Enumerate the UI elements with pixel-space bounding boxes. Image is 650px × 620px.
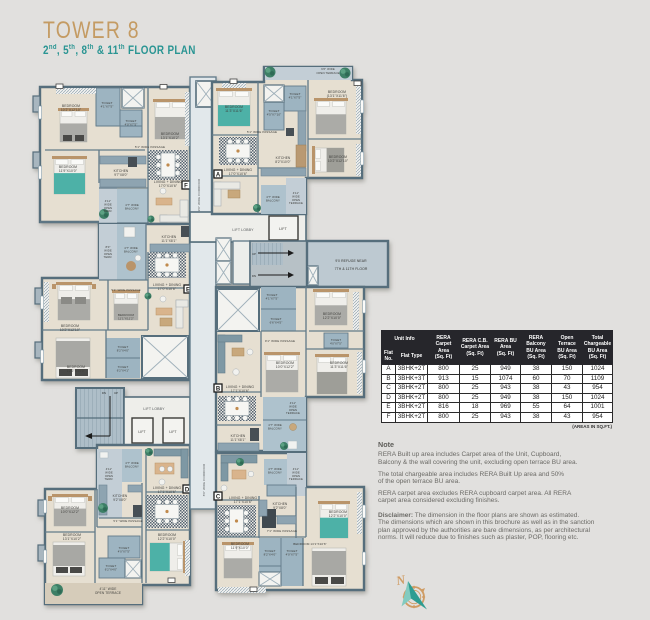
- svg-text:LIFT LOBBY: LIFT LOBBY: [143, 407, 165, 411]
- svg-text:N: N: [394, 572, 408, 588]
- svg-text:4'7" WIDEBALCONY: 4'7" WIDEBALCONY: [266, 195, 280, 202]
- svg-text:BEDROOM12'2"X10'0": BEDROOM12'2"X10'0": [67, 365, 86, 373]
- svg-text:TOILET4'0"X7'5": TOILET4'0"X7'5": [125, 119, 138, 127]
- svg-text:BEDROOM11'3"X11'6": BEDROOM11'3"X11'6": [330, 361, 349, 369]
- svg-text:BEDROOM11'1"X11'2": BEDROOM11'1"X11'2": [118, 313, 135, 321]
- svg-text:BEDROOM10'0"X12'2": BEDROOM10'0"X12'2": [276, 361, 295, 369]
- svg-text:BEDROOM10'2"X12'10": BEDROOM10'2"X12'10": [61, 104, 82, 112]
- svg-text:4'11"WIDEOPENTERR.: 4'11"WIDEOPENTERR.: [104, 199, 113, 213]
- svg-text:7TH & 11TH FLOOR: 7TH & 11TH FLOOR: [335, 267, 368, 271]
- svg-text:9'0" WIDE CORRIDOR: 9'0" WIDE CORRIDOR: [197, 178, 201, 211]
- svg-text:TOILET8'2"X4'0": TOILET8'2"X4'0": [264, 549, 277, 557]
- svg-text:TOILET4'5"X7'10": TOILET4'5"X7'10": [267, 109, 282, 117]
- svg-text:C: C: [216, 494, 221, 500]
- svg-text:LIFT LOBBY: LIFT LOBBY: [232, 228, 254, 232]
- svg-text:9'0 REFUGE NEAR: 9'0 REFUGE NEAR: [335, 259, 367, 263]
- svg-text:5'1" WIDE PASSAGE: 5'1" WIDE PASSAGE: [247, 130, 277, 134]
- svg-text:BEDROOM 13'1"X10'6": BEDROOM 13'1"X10'6": [293, 542, 327, 546]
- svg-text:BEDROOM12'2"X10'0": BEDROOM12'2"X10'0": [158, 533, 177, 541]
- svg-text:KITCHEN11'1"X8'1": KITCHEN11'1"X8'1": [230, 434, 246, 442]
- svg-text:8'0" WIDE CORRIDOR: 8'0" WIDE CORRIDOR: [202, 463, 206, 496]
- svg-text:TOILET4'0"X7'5": TOILET4'0"X7'5": [286, 549, 299, 557]
- svg-text:TOILET4'0"X7'5": TOILET4'0"X7'5": [330, 338, 342, 345]
- svg-text:TOILET6'2"X4'1": TOILET6'2"X4'1": [117, 365, 129, 373]
- svg-text:4'7" WIDEBALCONY: 4'7" WIDEBALCONY: [124, 246, 138, 253]
- svg-text:LIFT: LIFT: [279, 227, 287, 231]
- svg-text:4'7" WIDEBALCONY: 4'7" WIDEBALCONY: [125, 461, 139, 468]
- svg-text:4'7" WIDEBALCONY: 4'7" WIDEBALCONY: [268, 423, 282, 430]
- svg-text:KITCHEN9'2"X8'0": KITCHEN9'2"X8'0": [113, 494, 128, 502]
- svg-text:BEDROOM10'2"X12'10": BEDROOM10'2"X12'10": [328, 155, 349, 163]
- svg-text:UP: UP: [114, 391, 118, 395]
- svg-text:DN: DN: [102, 391, 106, 395]
- svg-text:4'7" WIDEBALCONY: 4'7" WIDEBALCONY: [268, 467, 282, 474]
- svg-text:5'3" WIDE PASSAGE: 5'3" WIDE PASSAGE: [111, 288, 140, 292]
- svg-text:BEDROOM13'1"X10'2": BEDROOM13'1"X10'2": [63, 533, 82, 541]
- svg-text:OPEN TERRACE: OPEN TERRACE: [316, 71, 339, 75]
- svg-text:TOILET6'2"X4'0": TOILET6'2"X4'0": [105, 564, 117, 572]
- svg-text:BEDROOM10'2"X12'10": BEDROOM10'2"X12'10": [60, 324, 81, 332]
- svg-text:5'1" WIDE PASSAGE: 5'1" WIDE PASSAGE: [113, 519, 142, 523]
- svg-text:4'11"WIDEOPENTERR.: 4'11"WIDEOPENTERR.: [105, 467, 114, 481]
- svg-text:TOILET4'0"X7'5": TOILET4'0"X7'5": [118, 546, 130, 554]
- svg-text:F: F: [184, 183, 188, 189]
- svg-text:TOILET8'2"X4'0": TOILET8'2"X4'0": [117, 345, 129, 353]
- svg-text:BEDROOM11'3"X11'6": BEDROOM11'3"X11'6": [225, 105, 244, 113]
- svg-text:BEDROOM13'1"X10'2": BEDROOM13'1"X10'2": [161, 132, 180, 140]
- svg-text:7'1" WIDE PASSAGE: 7'1" WIDE PASSAGE: [267, 529, 297, 533]
- svg-text:TOILET4'1"X7'5": TOILET4'1"X7'5": [266, 293, 279, 301]
- svg-text:D: D: [185, 487, 190, 493]
- svg-text:DN: DN: [252, 274, 256, 278]
- svg-text:BEDROOM11'9"X10'0": BEDROOM11'9"X10'0": [59, 165, 78, 173]
- svg-text:5'1" WIDE PASSAGE: 5'1" WIDE PASSAGE: [135, 145, 165, 149]
- svg-text:4'7" WIDEBALCONY: 4'7" WIDEBALCONY: [125, 203, 139, 210]
- svg-text:LIFT: LIFT: [138, 430, 145, 434]
- svg-text:TOILET6'6"X4'5": TOILET6'6"X4'5": [270, 317, 283, 325]
- svg-text:KITCHEN9'2"X8'0": KITCHEN9'2"X8'0": [273, 502, 288, 510]
- svg-text:KITCHEN8'2"X10'0": KITCHEN8'2"X10'0": [275, 156, 291, 164]
- svg-text:KITCHEN9'7"X8'0": KITCHEN9'7"X8'0": [114, 169, 129, 177]
- svg-text:LIFT: LIFT: [169, 430, 176, 434]
- svg-text:KITCHEN11'1"X8'1": KITCHEN11'1"X8'1": [161, 235, 177, 243]
- svg-text:9'1" WIDE PASSAGE: 9'1" WIDE PASSAGE: [265, 339, 295, 343]
- svg-text:BEDROOM12'2"X10'0": BEDROOM12'2"X10'0": [323, 312, 342, 320]
- svg-text:TOILET4'1"X7'5": TOILET4'1"X7'5": [289, 92, 302, 100]
- svg-text:BEDROOM(13'1"X11'6"): BEDROOM(13'1"X11'6"): [327, 90, 348, 98]
- svg-text:B: B: [216, 386, 221, 392]
- svg-text:BEDROOM12'2"X10'0": BEDROOM12'2"X10'0": [329, 510, 348, 518]
- svg-text:BEDROOM10'0"X12'2": BEDROOM10'0"X12'2": [61, 506, 80, 514]
- svg-text:UP: UP: [252, 252, 256, 256]
- svg-text:TOILET4'1"X7'5": TOILET4'1"X7'5": [101, 101, 114, 109]
- svg-text:BEDROOM11'9"X10'0": BEDROOM11'9"X10'0": [231, 542, 250, 550]
- svg-text:A: A: [216, 172, 221, 178]
